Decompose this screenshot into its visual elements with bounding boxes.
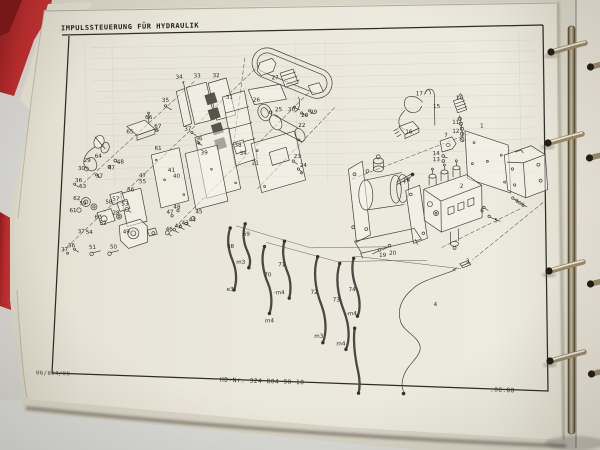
footer-date: .06.88 xyxy=(490,387,515,395)
footer-document-number: 06/804/00 xyxy=(36,371,70,379)
photo-of-parts-manual-page: 3433323531262725302829226667653736383421… xyxy=(0,0,600,450)
